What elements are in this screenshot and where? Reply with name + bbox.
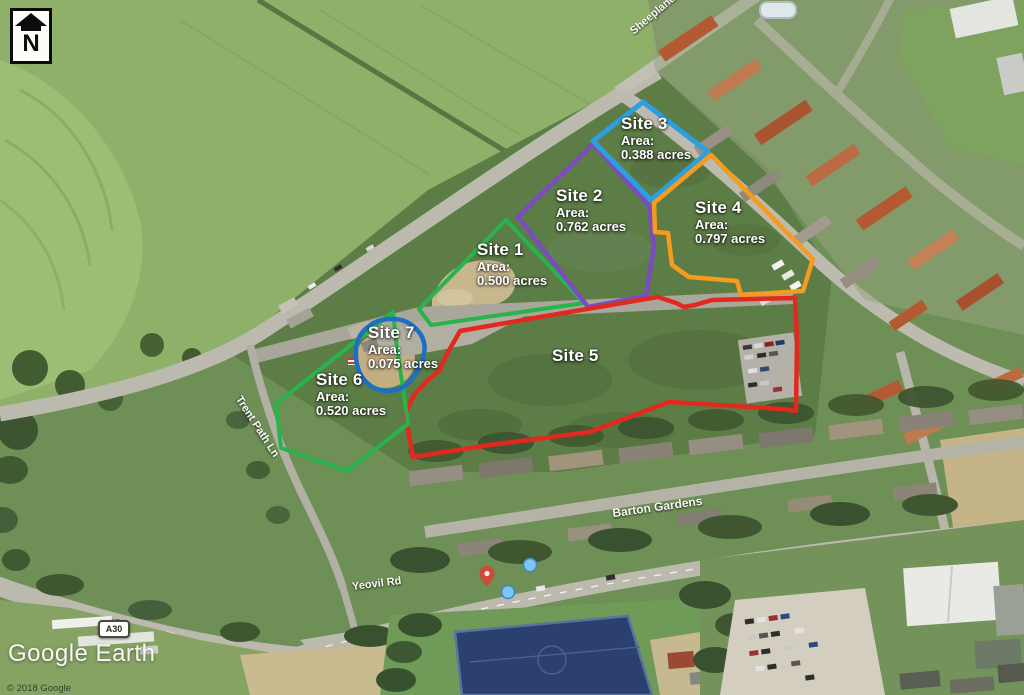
site-6-label: Site 6 Area: 0.520 acres bbox=[316, 370, 386, 419]
site-4-label: Site 4 Area: 0.797 acres bbox=[695, 198, 765, 247]
site-7-area-value: 0.075 acres bbox=[368, 357, 438, 372]
site-6-area-value: 0.520 acres bbox=[316, 404, 386, 419]
map-viewport: Site 1 Area: 0.500 acres Site 2 Area: 0.… bbox=[0, 0, 1024, 695]
google-earth-watermark: Google Earth bbox=[8, 640, 155, 668]
site-2-label: Site 2 Area: 0.762 acres bbox=[556, 186, 626, 235]
site-4-area-value: 0.797 acres bbox=[695, 232, 765, 247]
copyright-text: © 2018 Google bbox=[7, 683, 71, 694]
site-7-label: Site 7 Area: 0.075 acres bbox=[368, 323, 438, 372]
north-indicator: N bbox=[10, 8, 52, 64]
north-letter: N bbox=[22, 32, 39, 56]
site-3-name: Site 3 bbox=[621, 114, 691, 134]
sports-court-area bbox=[376, 598, 715, 695]
site-2-area-value: 0.762 acres bbox=[556, 220, 626, 235]
site-1-area-value: 0.500 acres bbox=[477, 274, 547, 289]
site-1-label: Site 1 Area: 0.500 acres bbox=[477, 240, 547, 289]
aerial-basemap bbox=[0, 0, 1024, 695]
place-pin-dot bbox=[484, 571, 489, 576]
site-7-name: Site 7 bbox=[368, 323, 438, 343]
site-5-name: Site 5 bbox=[552, 346, 599, 366]
photo-marker-icon[interactable] bbox=[524, 559, 537, 572]
industrial-bottom-right bbox=[679, 520, 1024, 695]
site-1-name: Site 1 bbox=[477, 240, 547, 260]
photo-marker-icon[interactable] bbox=[502, 586, 515, 599]
route-shield-a30: A30 bbox=[98, 620, 130, 638]
site-3-area-value: 0.388 acres bbox=[621, 148, 691, 163]
site-3-label: Site 3 Area: 0.388 acres bbox=[621, 114, 691, 163]
site-4-name: Site 4 bbox=[695, 198, 765, 218]
site-6-name: Site 6 bbox=[316, 370, 386, 390]
site-5-label: Site 5 bbox=[552, 346, 599, 366]
site-2-name: Site 2 bbox=[556, 186, 626, 206]
place-pin-icon[interactable] bbox=[480, 566, 495, 587]
